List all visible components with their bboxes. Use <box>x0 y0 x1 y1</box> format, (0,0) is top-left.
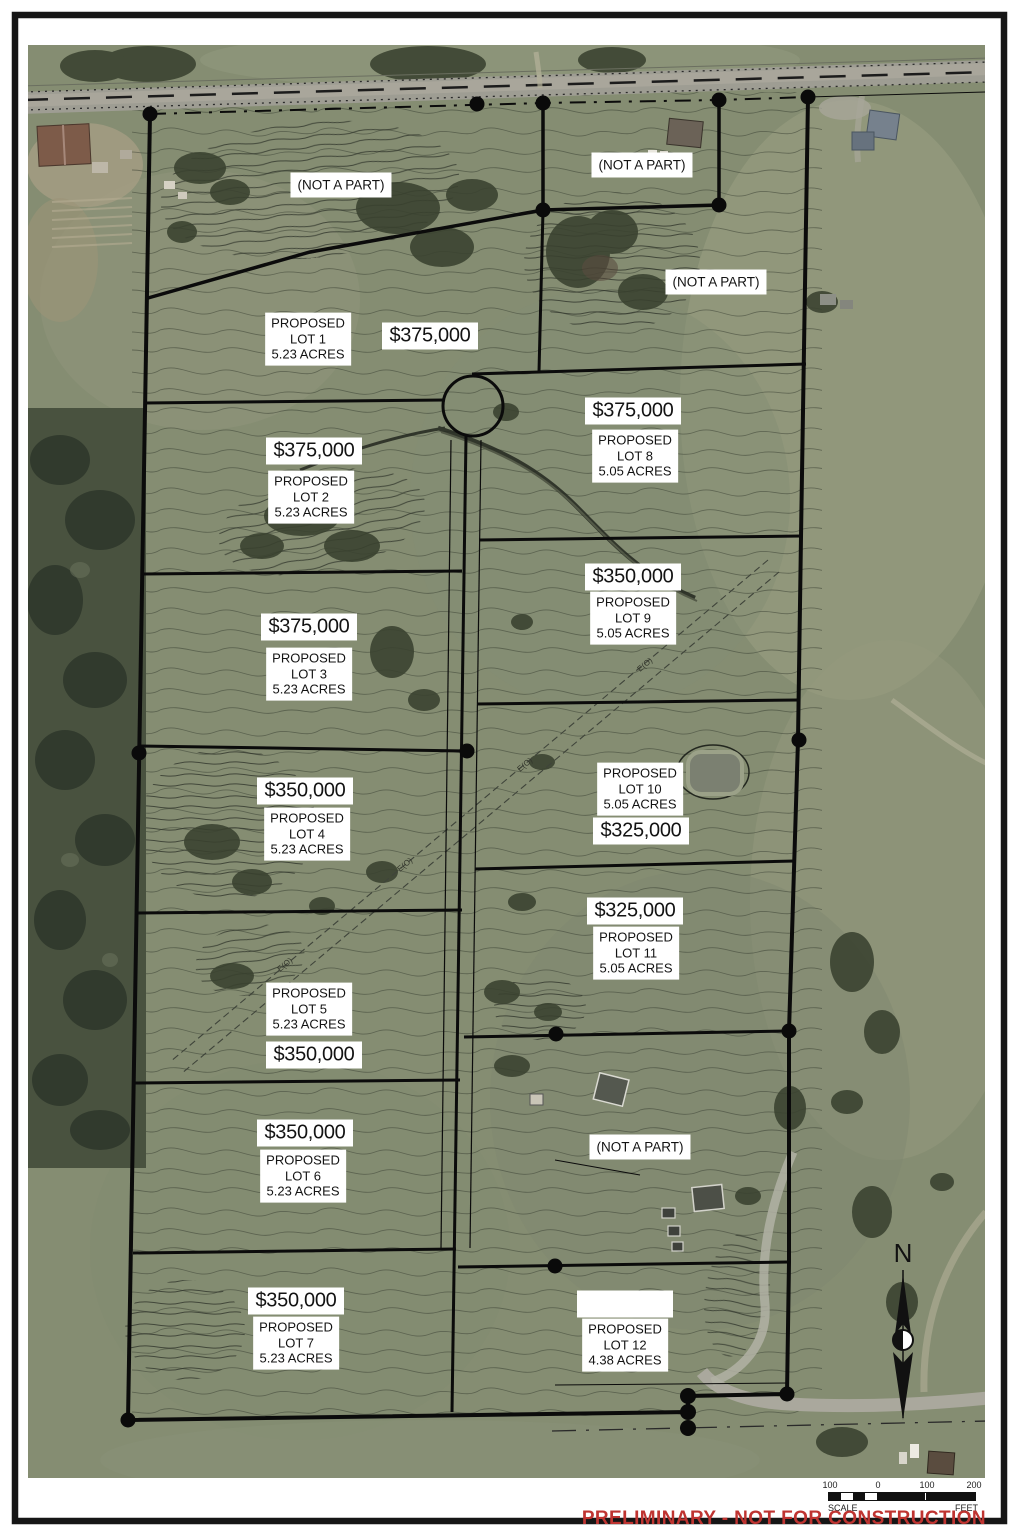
aerial-plat-map: E(O) E(O) E(O) E(O) <box>0 0 1019 1536</box>
lot-2-acres: 5.23 ACRES <box>274 505 348 521</box>
lot-10-info-box: PROPOSED LOT 10 5.05 ACRES <box>597 763 683 816</box>
lot-2-price-label: $375,000 <box>266 438 362 465</box>
lot-12-info-box: PROPOSED LOT 12 4.38 ACRES <box>582 1319 668 1372</box>
lot-9-price-label: $350,000 <box>585 564 681 591</box>
lot-1-info-box: PROPOSED LOT 1 5.23 ACRES <box>265 313 351 366</box>
plat-map-page: E(O) E(O) E(O) E(O) <box>0 0 1019 1536</box>
lot-11-price-label: $325,000 <box>587 898 683 925</box>
lot-5-acres: 5.23 ACRES <box>272 1017 346 1033</box>
lot-6-info-box: PROPOSED LOT 6 5.23 ACRES <box>260 1150 346 1203</box>
lot-5-proposed: PROPOSED <box>272 986 346 1002</box>
lot-4-number: LOT 4 <box>270 826 344 842</box>
lot-8-acres: 5.05 ACRES <box>598 464 672 480</box>
lot-4-info-box: PROPOSED LOT 4 5.23 ACRES <box>264 808 350 861</box>
lot-2-proposed: PROPOSED <box>274 474 348 490</box>
preliminary-disclaimer: PRELIMINARY - NOT FOR CONSTRUCTION <box>582 1508 986 1530</box>
lot-9-proposed: PROPOSED <box>596 595 670 611</box>
lot-8-proposed: PROPOSED <box>598 433 672 449</box>
lot-3-proposed: PROPOSED <box>272 651 346 667</box>
lot-11-info-box: PROPOSED LOT 11 5.05 ACRES <box>593 927 679 980</box>
not-a-part-label-2: (NOT A PART) <box>591 153 692 178</box>
lot-9-info-box: PROPOSED LOT 9 5.05 ACRES <box>590 592 676 645</box>
lot-4-acres: 5.23 ACRES <box>270 842 344 858</box>
north-label: N <box>894 1238 913 1268</box>
lot-5-number: LOT 5 <box>272 1001 346 1017</box>
lot-2-info-box: PROPOSED LOT 2 5.23 ACRES <box>268 471 354 524</box>
barn <box>692 1184 724 1211</box>
lot-4-proposed: PROPOSED <box>270 811 344 827</box>
lot-9-acres: 5.05 ACRES <box>596 626 670 642</box>
lot-10-number: LOT 10 <box>603 781 677 797</box>
lot-12-proposed: PROPOSED <box>588 1322 662 1338</box>
lot-1-price-label: $375,000 <box>382 323 478 350</box>
lot-8-number: LOT 8 <box>598 448 672 464</box>
lot-7-number: LOT 7 <box>259 1335 333 1351</box>
not-a-part-label-3: (NOT A PART) <box>665 270 766 295</box>
nap-house-top <box>667 118 704 147</box>
lot-10-acres: 5.05 ACRES <box>603 797 677 813</box>
lot-10-price-label: $325,000 <box>593 818 689 845</box>
lot-3-acres: 5.23 ACRES <box>272 682 346 698</box>
lot-1-number: LOT 1 <box>271 331 345 347</box>
lot-11-number: LOT 11 <box>599 945 673 961</box>
lot-3-price-label: $375,000 <box>261 614 357 641</box>
lot-12-price-label <box>577 1291 673 1318</box>
lot-6-price-label: $350,000 <box>257 1120 353 1147</box>
lot-11-proposed: PROPOSED <box>599 930 673 946</box>
scale-tick-100-right: 100 <box>919 1480 934 1490</box>
lot-9-number: LOT 9 <box>596 610 670 626</box>
scale-tick-100-left: 100 <box>822 1480 837 1490</box>
scale-bar-graphic <box>828 1492 976 1501</box>
lot-2-number: LOT 2 <box>274 489 348 505</box>
lot-3-info-box: PROPOSED LOT 3 5.23 ACRES <box>266 648 352 701</box>
lot-12-acres: 4.38 ACRES <box>588 1353 662 1369</box>
lot-6-acres: 5.23 ACRES <box>266 1184 340 1200</box>
lot-12-number: LOT 12 <box>588 1337 662 1353</box>
lot-10-proposed: PROPOSED <box>603 766 677 782</box>
lot-1-acres: 5.23 ACRES <box>271 347 345 363</box>
lot-7-price-label: $350,000 <box>248 1288 344 1315</box>
lot-5-info-box: PROPOSED LOT 5 5.23 ACRES <box>266 983 352 1036</box>
scale-tick-0: 0 <box>875 1480 880 1490</box>
lot-7-proposed: PROPOSED <box>259 1320 333 1336</box>
lot-11-acres: 5.05 ACRES <box>599 961 673 977</box>
lot-6-proposed: PROPOSED <box>266 1153 340 1169</box>
lot-4-price-label: $350,000 <box>257 778 353 805</box>
lot-3-number: LOT 3 <box>272 666 346 682</box>
not-a-part-label-4: (NOT A PART) <box>589 1135 690 1160</box>
lot-7-acres: 5.23 ACRES <box>259 1351 333 1367</box>
lot-6-number: LOT 6 <box>266 1168 340 1184</box>
lot-8-info-box: PROPOSED LOT 8 5.05 ACRES <box>592 430 678 483</box>
not-a-part-label-1: (NOT A PART) <box>290 173 391 198</box>
house-bottom-right <box>927 1451 954 1475</box>
pond <box>677 745 749 799</box>
lot-5-price-label: $350,000 <box>266 1042 362 1069</box>
scale-bar-numbers: 100 0 100 200 <box>828 1480 978 1491</box>
scale-tick-200: 200 <box>966 1480 981 1490</box>
lot-1-proposed: PROPOSED <box>271 316 345 332</box>
farm-house <box>37 124 91 167</box>
lot-8-price-label: $375,000 <box>585 398 681 425</box>
lot-7-info-box: PROPOSED LOT 7 5.23 ACRES <box>253 1317 339 1370</box>
forest <box>27 408 146 1168</box>
